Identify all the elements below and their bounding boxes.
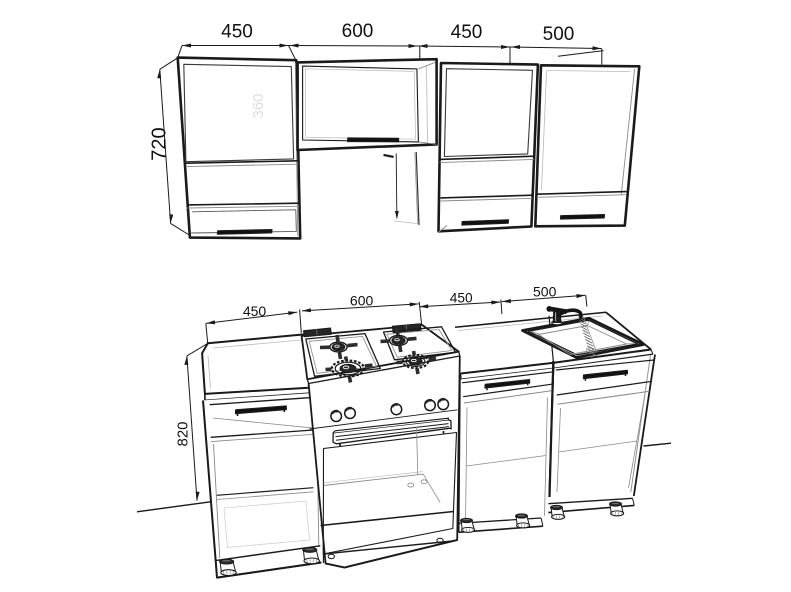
svg-text:450: 450 (450, 291, 473, 306)
svg-text:820: 820 (175, 421, 192, 446)
svg-text:500: 500 (543, 24, 575, 45)
svg-text:600: 600 (342, 21, 374, 42)
svg-text:500: 500 (533, 283, 557, 299)
svg-text:450: 450 (243, 303, 267, 319)
svg-text:720: 720 (149, 127, 171, 160)
svg-text:360: 360 (250, 93, 267, 118)
svg-text:450: 450 (221, 22, 253, 43)
svg-text:450: 450 (451, 22, 483, 43)
svg-text:600: 600 (350, 292, 374, 308)
